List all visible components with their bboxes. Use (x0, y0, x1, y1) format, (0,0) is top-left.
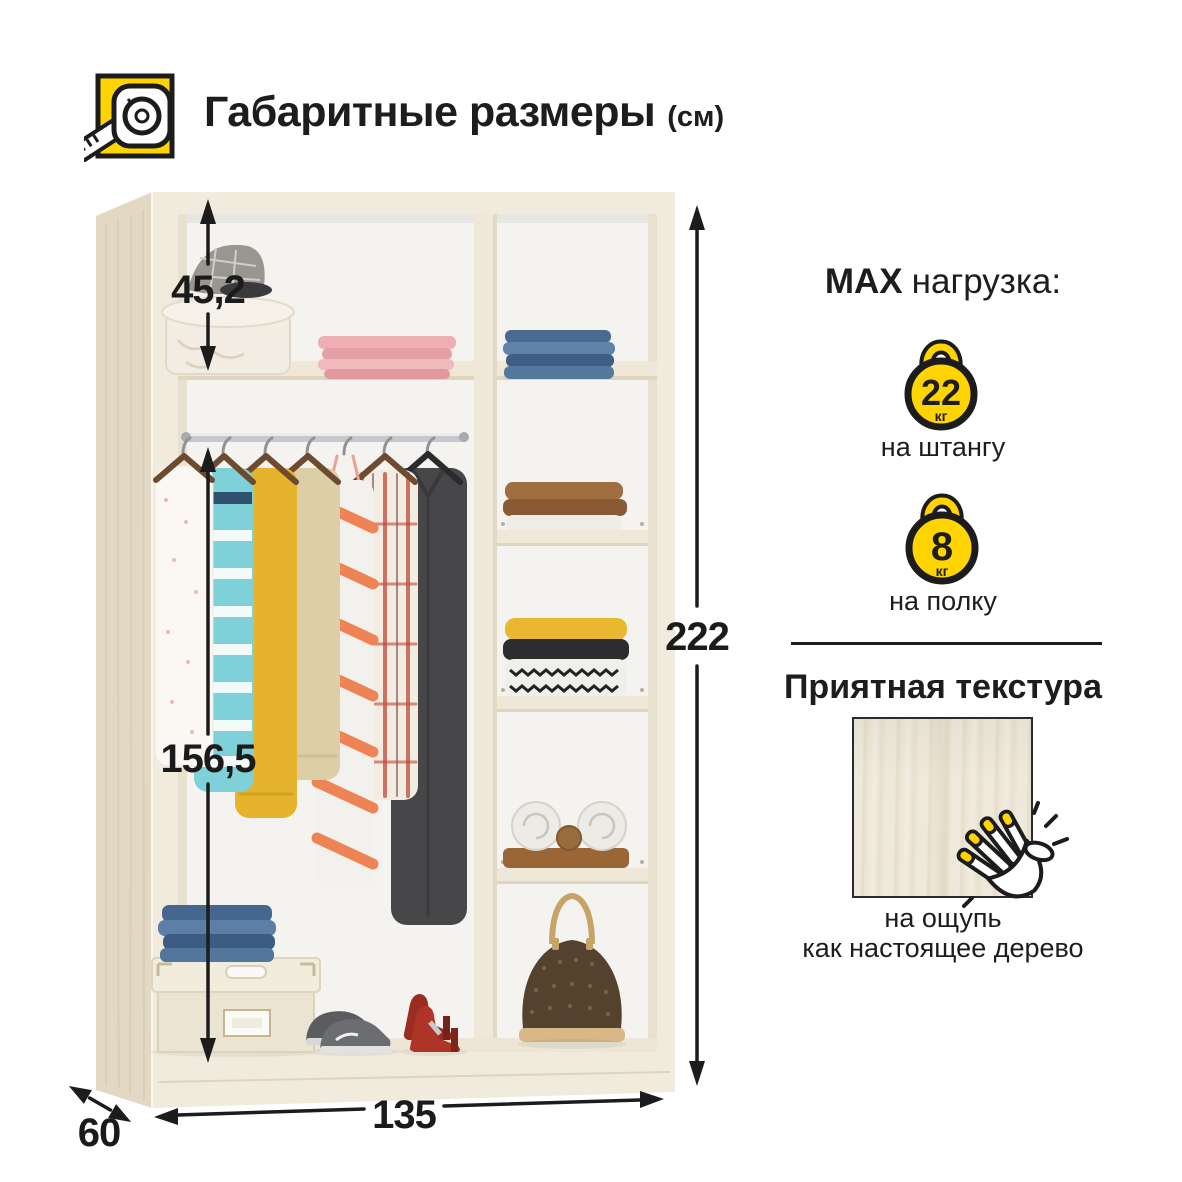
max-load-heading: MAXнагрузка: (778, 262, 1108, 302)
infographic-canvas: Габаритные размеры (см) (0, 0, 1182, 1182)
folded-clothes-pink (318, 336, 456, 379)
folded-towels-brown (503, 482, 627, 530)
kettlebell-shelf-icon: 8 кг (898, 484, 986, 586)
folded-jeans-top (503, 330, 615, 379)
dim-height-label: 222 (665, 615, 729, 659)
rod-load-unit: кг (935, 408, 948, 424)
folded-sweater-stack (503, 618, 629, 696)
shelf-load-unit: кг (936, 563, 949, 579)
shelf-load-label: на полку (778, 586, 1108, 617)
rod-load-label: на штангу (778, 432, 1108, 463)
storage-box (152, 958, 320, 1052)
texture-caption-line1: на ощупь (768, 903, 1118, 933)
dim-top-shelf-label: 45,2 (171, 268, 245, 312)
folded-jeans-bottom (158, 905, 276, 962)
max-load-heading-max: MAX (825, 262, 903, 301)
texture-caption: на ощупь как настоящее дерево (768, 903, 1118, 963)
texture-caption-line2: как настоящее дерево (768, 933, 1118, 963)
dim-depth-label: 60 (78, 1111, 121, 1155)
max-load-heading-rest: нагрузка: (912, 262, 1061, 301)
clap-hand-icon (946, 800, 1078, 918)
section-divider (791, 642, 1102, 645)
texture-heading: Приятная текстура (768, 668, 1118, 707)
dim-hanging-label: 156,5 (160, 737, 256, 781)
rod-load-value: 22 (921, 372, 961, 413)
hanging-rod (181, 432, 469, 442)
kettlebell-rod-icon: 22 кг (897, 330, 985, 432)
dim-width-label: 135 (372, 1093, 436, 1137)
dotted-blouse (155, 438, 213, 766)
